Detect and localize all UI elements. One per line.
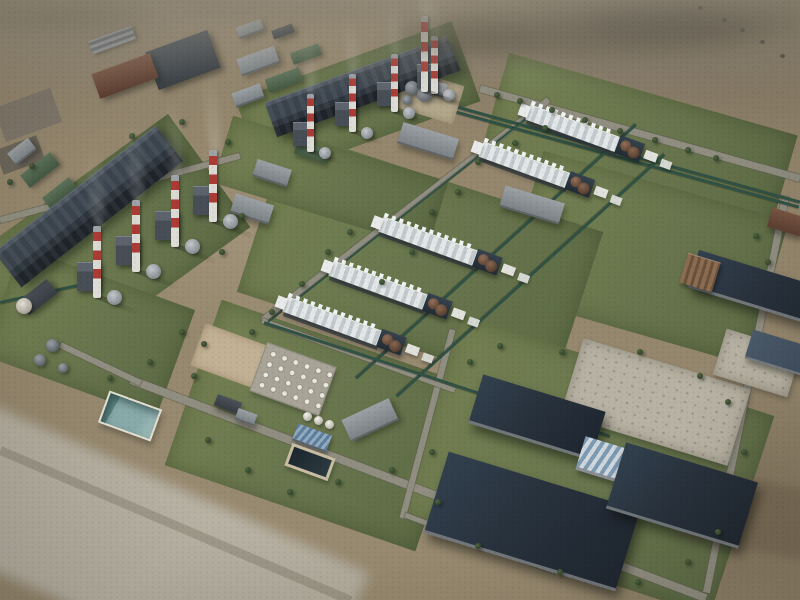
tree <box>205 437 211 443</box>
tree <box>7 179 13 185</box>
tree <box>475 159 481 165</box>
tree <box>179 329 185 335</box>
tree <box>765 259 771 265</box>
tree <box>557 569 563 575</box>
tree <box>239 213 245 219</box>
building-aux-1 <box>236 46 280 77</box>
tree <box>269 309 275 315</box>
smoke-cloud <box>380 20 550 60</box>
scene-layers <box>0 0 800 600</box>
stack-north-3-drum <box>403 107 415 119</box>
tree <box>347 229 353 235</box>
tree <box>582 117 588 123</box>
pad-top-left-a <box>0 88 62 142</box>
tree <box>379 279 385 285</box>
tree <box>713 155 719 161</box>
tree <box>542 125 548 131</box>
stack-north-2-pole <box>349 74 356 132</box>
tree <box>497 343 503 349</box>
storage-tank-white <box>16 298 32 314</box>
tree <box>389 467 395 473</box>
tree <box>753 233 759 239</box>
building-warehouse-brown <box>91 53 158 99</box>
tree <box>559 349 565 355</box>
tree <box>512 140 518 146</box>
silo-3 <box>58 363 68 373</box>
stack-west-4-drum <box>223 214 238 229</box>
stack-west-3-pole <box>171 175 179 247</box>
silo-1 <box>46 339 59 352</box>
stack-north-1-pole <box>307 94 314 152</box>
silo-2 <box>34 354 46 366</box>
tree <box>201 341 207 347</box>
tree <box>245 467 251 473</box>
stack-west-2-pole <box>132 200 140 272</box>
tree <box>652 137 658 143</box>
stack-north-2-drum <box>361 127 373 139</box>
building-top-b <box>271 23 295 39</box>
tree <box>685 147 691 153</box>
tree <box>287 489 293 495</box>
tree <box>191 373 197 379</box>
stack-west-2-drum <box>146 264 161 279</box>
aerial-render-power-desalination-plant <box>0 0 800 600</box>
tree <box>335 479 341 485</box>
tree <box>225 139 231 145</box>
steam-plume <box>202 72 223 153</box>
smoke-cloud <box>0 0 160 33</box>
stack-north-3-pole <box>391 54 398 112</box>
tree <box>685 559 691 565</box>
tree <box>29 163 35 169</box>
tree <box>249 329 255 335</box>
flare-vessel-3 <box>402 95 412 105</box>
tree <box>429 449 435 455</box>
stack-west-1-pole <box>93 226 101 298</box>
tree <box>409 249 415 255</box>
tree <box>107 375 113 381</box>
tree <box>299 281 305 287</box>
tree <box>725 399 731 405</box>
sphere-tank-1 <box>303 412 312 421</box>
tree <box>494 92 500 98</box>
tree <box>637 349 643 355</box>
tree <box>517 98 523 104</box>
tree <box>435 499 441 505</box>
stack-west-1-drum <box>107 290 122 305</box>
desert-shrub <box>780 54 785 58</box>
tree <box>219 249 225 255</box>
tree <box>715 529 721 535</box>
sphere-tank-3 <box>325 420 334 429</box>
tree <box>617 128 623 134</box>
stack-west-4-pole <box>209 150 217 222</box>
tree <box>429 209 435 215</box>
tree <box>475 543 481 549</box>
stack-west-3-drum <box>185 239 200 254</box>
tree <box>455 189 461 195</box>
building-long-north <box>397 122 459 160</box>
tree <box>549 107 555 113</box>
tree <box>147 359 153 365</box>
sphere-tank-2 <box>314 416 323 425</box>
tree <box>697 373 703 379</box>
stack-north-1-drum <box>319 147 331 159</box>
tree <box>325 249 331 255</box>
tree <box>635 579 641 585</box>
tree <box>467 359 473 365</box>
tree <box>741 449 747 455</box>
